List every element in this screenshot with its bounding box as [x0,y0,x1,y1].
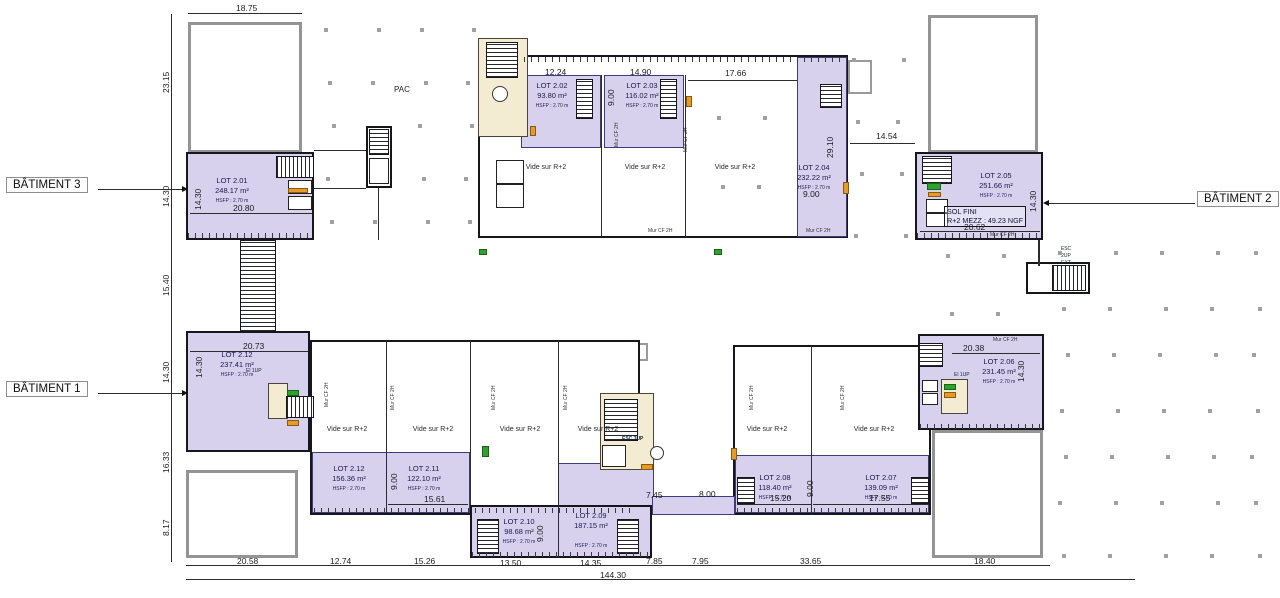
dimension-label: 9.00 [805,480,815,497]
floor-plan: BÂTIMENT 3 BÂTIMENT 1 BÂTIMENT 2 PAC ESC… [0,0,1280,598]
dimension-line [188,13,302,14]
grid-dot [332,124,336,128]
grid-dot [763,116,767,120]
grid-dot [1164,554,1168,558]
murcf-label: Mur CF 2H [683,128,689,152]
dimension-label: 29.10 [825,137,835,158]
grid-dot [464,177,468,181]
dimension-label: 14.30 [194,357,204,378]
grid-dot [1066,353,1070,357]
grid-dot [1258,307,1262,311]
grid-dot [373,220,377,224]
grid-dot [1162,409,1166,413]
batiment-3-shell [188,22,302,153]
murcf-label: Mur CF 2H [806,228,830,234]
dimension-line [813,504,929,505]
grid-dot [1002,254,1006,258]
grid-dot [377,28,381,32]
grid-dot [1216,251,1220,255]
lot-label-line: LOT 2.05 [951,171,1041,181]
lot-label-line: HSFP : 2.70 m [507,103,597,110]
grid-dot [1214,353,1218,357]
elevator-cell [369,158,389,184]
stair-core-lot-2-12 [268,383,288,419]
elevator-cell [602,445,626,467]
elevator-cell [288,196,312,210]
grid-dot [856,120,860,124]
murcf-label: Mur CF 2H [648,228,672,234]
grid-dot [1112,353,1116,357]
room-lot-2-09-upper [558,463,654,510]
wall-segment [378,188,379,240]
dimension-line [171,14,172,562]
grid-dot [902,58,906,62]
elevator-cell [922,380,938,392]
grid-dot [900,172,904,176]
lot-label-lot-2-12: LOT 2.12237.41 m²HSFP : 2.70 m [192,350,282,378]
grid-dot [721,185,725,189]
vide-label: Vide sur R+2 [563,426,633,433]
grid-dot [1116,409,1120,413]
wall-segment [314,150,366,151]
pac-label: PAC [394,85,410,94]
lot-label-line: LOT 2.12 [304,464,394,474]
grid-dot [1114,251,1118,255]
esc-2up-ext-label: ESC 2UP EXT [1054,246,1078,267]
vide-label: Vide sur R+2 [312,426,382,433]
dimension-label: 8.00 [699,489,716,499]
grid-dot [1256,409,1260,413]
lot-label-lot-2-02: LOT 2.0293.80 m²HSFP : 2.70 m [507,81,597,109]
grid-dot [1060,409,1064,413]
grid-dot [1064,455,1068,459]
dimension-label: 14.90 [630,67,651,77]
dimension-label: 7.95 [692,556,709,566]
batiment-1-se-shell [932,430,1043,558]
vide-label: Vide sur R+2 [610,164,680,171]
grid-dot [326,177,330,181]
facade-hatch [472,552,650,557]
grid-dot [1216,501,1220,505]
grid-dot [328,81,332,85]
purple-connector [652,496,735,515]
dimension-label: 14.30 [1028,191,1038,212]
dimension-label: 17.55 [869,493,890,503]
murcf-label: Mur CF 2H [993,337,1017,343]
lot-label-line: 237.41 m² [192,360,282,370]
grid-dot [950,312,954,316]
murcf-label: Mur CF 2H [749,386,755,410]
divider-wall [470,340,471,505]
grid-dot [1258,554,1262,558]
door-marker [927,183,941,190]
wall-segment [314,188,366,189]
grid-dot [1058,251,1062,255]
lot-label-line: LOT 2.01 [187,176,277,186]
stairs-esc3 [604,399,638,441]
grid-dot [1212,455,1216,459]
dimension-label: 8.17 [161,519,171,536]
grid-dot [418,124,422,128]
grid-dot [1062,307,1066,311]
dimension-label: 20.73 [243,341,264,351]
vide-label: Vide sur R+2 [485,426,555,433]
door-marker [287,390,299,396]
grid-dot [1058,501,1062,505]
grid-dot [470,124,474,128]
dimension-line [952,353,1040,354]
dimension-line [190,213,312,214]
grid-dot [472,28,476,32]
dimension-label: 9.00 [606,89,616,106]
grid-dot [852,58,856,62]
door-marker [288,188,308,193]
grid-dot [1208,409,1212,413]
door-marker [714,249,722,255]
leader-line-batiment-3 [98,189,186,190]
vide-label: Vide sur R+2 [398,426,468,433]
dimension-line [186,565,1050,566]
dimension-label: 18.75 [236,3,257,13]
stairs-lot-2-04 [820,84,842,108]
lot-label-lot-2-10: LOT 2.1098.68 m²HSFP : 2.70 m [474,517,564,545]
dimension-line [850,143,915,144]
grid-dot [330,220,334,224]
wc-circle [650,446,664,460]
dimension-label: 15.20 [770,493,791,503]
door-marker [479,249,487,255]
dimension-label: 14.35 [580,558,601,568]
leader-arrow [182,390,188,396]
dimension-label: 14.30 [193,189,203,210]
grid-dot [1252,353,1256,357]
grid-dot [996,312,1000,316]
door-marker [944,392,956,398]
grid-dot [426,220,430,224]
murcf-label: Mur CF 2H [563,386,569,410]
grid-dot [1114,501,1118,505]
leader-arrow [1043,200,1049,206]
facade-hatch [737,508,927,513]
grid-dot [1254,501,1258,505]
dimension-line [388,504,468,505]
grid-dot [1166,455,1170,459]
grid-dot [1160,251,1164,255]
grid-dot [1110,455,1114,459]
dimension-label: 20.38 [963,343,984,353]
dimension-label: 12.24 [545,67,566,77]
dimension-label: 144.30 [600,570,626,580]
grid-dot [422,177,426,181]
dimension-label: 23.15 [161,72,171,93]
stairs-pac [369,129,389,155]
grid-dot [1160,501,1164,505]
dimension-label: 33.65 [800,556,821,566]
batiment-2-label: BÂTIMENT 2 [1197,191,1279,207]
door-marker [287,420,299,426]
door-marker [482,446,489,457]
lot-label-line: 156.36 m² [304,474,394,484]
grid-dot [1108,554,1112,558]
grid-dot [1210,307,1214,311]
grid-dot [1062,554,1066,558]
stairs-lot-2-12 [286,396,314,418]
grid-dot [424,81,428,85]
dimension-line [186,579,1135,580]
batiment-1-sw-shell [186,470,298,558]
lot-label-lot-2-12: LOT 2.12156.36 m²HSFP : 2.70 m [304,464,394,492]
dimension-label: 18.40 [974,556,995,566]
divider-wall [688,80,797,81]
dimension-label: 20.62 [964,222,985,232]
grid-dot [860,172,864,176]
leader-line-batiment-2 [1045,203,1195,204]
dimension-label: 14.30 [161,362,171,383]
grid-dot [466,81,470,85]
grid-dot [324,28,328,32]
dimension-label: 15.61 [424,494,445,504]
dimension-label: 15.26 [414,556,435,566]
stairs-lot-2-05 [922,156,952,184]
elevator-cell [496,184,524,208]
murcf-label: Mur CF 2H [614,123,620,147]
lot-label-line: 93.80 m² [507,91,597,101]
murcf-label: Mur CF 2H [491,386,497,410]
grid-dot [1250,455,1254,459]
stairs-lot-2-01 [276,156,314,178]
grid-dot [904,234,908,238]
dimension-label: 9.00 [803,189,820,199]
wall-segment [1038,240,1040,266]
lot-label-line: LOT 2.02 [507,81,597,91]
dimension-label: 12.74 [330,556,351,566]
murcf-label: Mur CF 2H [324,383,330,407]
dimension-line [737,504,811,505]
grid-dot [371,81,375,85]
facade-hatch [917,233,1043,238]
lot-label-line: HSFP : 2.70 m [304,486,394,493]
grid-dot [1164,307,1168,311]
vide-label: Vide sur R+2 [732,426,802,433]
dimension-label: 20.80 [233,203,254,213]
grid-dot [717,116,721,120]
lot-label-line: LOT 2.07 [836,473,926,483]
link-stairs [240,240,276,332]
leader-line-batiment-1 [98,393,186,394]
dimension-label: 14.30 [161,186,171,207]
grid-dot [1210,554,1214,558]
lot-label-line: LOT 2.12 [192,350,282,360]
dimension-label: 20.58 [237,556,258,566]
door-marker [641,464,653,470]
dimension-label: 17.66 [725,68,746,78]
grid-dot [896,120,900,124]
murcf-label: Mur CF 2H [390,386,396,410]
dimension-label: 7.85 [646,556,663,566]
elevator-cell [922,393,938,405]
door-marker [731,448,737,460]
lot-label-line: HSFP : 2.70 m [192,372,282,379]
sol-fini-line1: SOL FINI [947,207,1023,216]
batiment-2-shell [928,15,1038,153]
grid-dot [854,234,858,238]
dimension-label: 14.54 [876,131,897,141]
grid-dot [946,254,950,258]
grid-dot [1158,353,1162,357]
door-marker [928,192,941,197]
facade-hatch [920,424,1042,429]
vide-label: Vide sur R+2 [839,426,909,433]
vide-label: Vide sur R+2 [700,164,770,171]
batiment-1-label: BÂTIMENT 1 [6,381,88,397]
vide-label: Vide sur R+2 [511,164,581,171]
door-marker [530,126,536,136]
murcf-label: Mur CF 2H [840,386,846,410]
lot-label-line: 139.09 m² [836,483,926,493]
lot-label-line: LOT 2.06 [954,357,1044,367]
wc-circle [492,86,508,102]
grid-dot [468,220,472,224]
grid-dot [1108,307,1112,311]
lot-label-line: 232.22 m² [769,173,859,183]
lot-label-line: 231.45 m² [954,367,1044,377]
grid-dot [1254,251,1258,255]
batiment-3-label: BÂTIMENT 3 [6,177,88,193]
stairs-esc-ext [1052,265,1086,291]
stairs-lot-2-06 [919,343,943,367]
rooftop-unit [848,60,872,94]
facade-hatch [524,57,840,62]
grid-dot [420,28,424,32]
dimension-label: 14.30 [1016,361,1026,382]
dimension-label: 15.40 [161,275,171,296]
dimension-label: 13.50 [500,558,521,568]
lot-label-line: 251.66 m² [951,181,1041,191]
lot-label-line: LOT 2.04 [769,163,859,173]
dimension-label: 9.00 [389,473,399,490]
lot-label-line: HSFP : 2.70 m [954,379,1044,386]
lot-label-lot-2-06: LOT 2.06231.45 m²HSFP : 2.70 m [954,357,1044,385]
grid-dot [757,185,761,189]
murcf-label: Mur CF 2H [990,232,1014,238]
lot-label-line: 98.68 m² [474,527,564,537]
stairs-core-top [486,42,518,78]
dimension-label: 9.00 [535,525,545,542]
facade-hatch [188,233,314,238]
lot-label-line: LOT 2.10 [474,517,564,527]
dimension-label: 7.45 [646,490,663,500]
lot-label-line: HSFP : 2.70 m [474,539,564,546]
esc-3up-label: ESC 3UP [622,436,643,442]
lot-label-lot-2-04: LOT 2.04232.22 m²HSFP : 2.70 m [769,163,859,191]
dimension-label: 16.33 [161,452,171,473]
